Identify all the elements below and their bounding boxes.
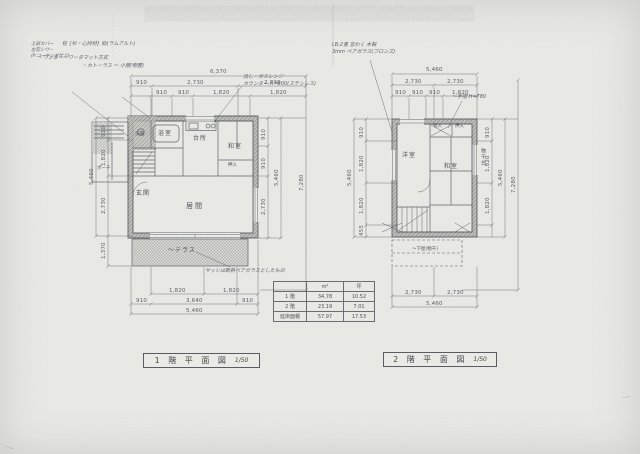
dim-label: 1,820 <box>359 155 366 172</box>
plan2-title: 2 階 平 面 図 <box>393 354 467 365</box>
room-label-bath: 浴室 <box>158 130 172 137</box>
room-label-kitchen: 台所 <box>193 135 207 142</box>
dim-label: 910 <box>412 90 423 97</box>
dim-label: 5,460 <box>426 67 443 74</box>
dim-label: 1,820 <box>452 90 469 97</box>
dim-label: 1,820 <box>101 149 108 166</box>
dim-label: 5,460 <box>347 169 354 186</box>
dim-label: 5,460 <box>89 168 96 185</box>
dim-label: 5,460 <box>426 301 443 308</box>
room-label-wash: 洗面 <box>135 132 144 137</box>
room-label-porch: ポーチ <box>97 166 111 171</box>
room-label-entry: 玄関 <box>136 190 150 197</box>
dim-label: 1,820 <box>485 155 492 172</box>
note-window: LB:2重 窓わく 木製 3mm ペアガラス(ブロンズ) <box>332 42 395 55</box>
area-cell: 7.01 <box>344 302 375 312</box>
dim-label: 2,730 <box>405 79 422 86</box>
dim-label: 455 <box>359 225 366 236</box>
scan-speckle-band <box>172 7 447 20</box>
area-cell: 延床面積 <box>274 312 307 322</box>
dim-label: 1,370 <box>101 242 108 259</box>
area-cell: 23.19 <box>307 302 344 312</box>
dim-label: 5,460 <box>498 169 505 186</box>
plan1-title-box: 1 階 平 面 図 1/50 <box>143 353 260 368</box>
dim-label: 1,820 <box>223 288 240 295</box>
room-label-closet-a: 物入 <box>433 124 442 129</box>
area-cell: 34.78 <box>307 292 344 302</box>
plan1-scale: 1/50 <box>235 357 248 364</box>
dim-label: 910 <box>485 127 492 138</box>
note-shed: ・カトーラス 〜 小屋(物置) <box>82 63 144 70</box>
note-terrace: サッシは断熱ペアガラスとしたもの <box>205 268 285 275</box>
note-posts: 柱 {杉・心持材} 貼(ラムアルト) <box>62 41 135 48</box>
area-cell: 17.53 <box>344 312 375 322</box>
dim-label: 6,370 <box>210 69 227 76</box>
dim-label: 7,280 <box>511 176 518 193</box>
dim-label: 910 <box>261 158 268 169</box>
room-label-closet-b: 押入 <box>455 124 464 129</box>
dim-label: 2,730 <box>261 198 268 215</box>
dim-label: 3,640 <box>186 298 203 305</box>
dim-label: 1,820 <box>169 288 186 295</box>
room-label-closet1: 押入 <box>228 163 237 168</box>
scanned-floor-plan-sheet: 上部カバー 左官シワ— (P.コーキング仕上) 柱 {杉・心持材} 貼(ラムアル… <box>0 0 640 454</box>
plan2-scale: 1/50 <box>473 356 486 363</box>
room-label-tatami1: 和室 <box>228 143 242 150</box>
room-label-west: 洋室 <box>402 152 416 159</box>
dim-label: 910 <box>136 298 147 305</box>
plan1-title: 1 階 平 面 図 <box>155 355 229 366</box>
dim-label: 2,730 <box>447 79 464 86</box>
area-cell: 10.52 <box>344 292 375 302</box>
area-cell: 57.97 <box>307 312 344 322</box>
dim-label: 2,730 <box>187 80 204 87</box>
dim-label: 7,280 <box>299 174 306 191</box>
dim-label: 910 <box>359 127 366 138</box>
dim-label: 910 <box>395 90 406 97</box>
area-cell: 2 階 <box>274 302 307 312</box>
dim-label: 2,730 <box>447 290 464 297</box>
dim-label: 910 <box>156 90 167 97</box>
dim-label: 1,820 <box>359 197 366 214</box>
dim-label: 5,460 <box>274 169 281 186</box>
dim-label: 2,730 <box>101 197 108 214</box>
dim-label: 910 <box>101 126 108 137</box>
dim-label: 1,820 <box>270 90 287 97</box>
dim-label: 2,730 <box>405 290 422 297</box>
area-header <box>274 282 307 292</box>
area-table: m² 坪 1 階 34.78 10.52 2 階 23.19 7.01 延床面積… <box>273 281 375 322</box>
area-header: 坪 <box>344 282 375 292</box>
dim-label: 910 <box>242 298 253 305</box>
area-header: m² <box>307 282 344 292</box>
dim-label: 1,820 <box>213 90 230 97</box>
room-label-tatami2: 和室 <box>444 163 458 170</box>
dim-label: 5,460 <box>186 308 203 315</box>
dim-label: 2,730 <box>264 80 281 87</box>
dim-label: 910 <box>429 90 440 97</box>
dim-label: 910 <box>136 80 147 87</box>
dim-label: 910 <box>261 129 268 140</box>
area-cell: 1 階 <box>274 292 307 302</box>
room-label-living: 居間 <box>186 202 204 210</box>
note-method: ・ワンター・ワータマット方式 <box>38 55 108 62</box>
dim-label: 910 <box>178 90 189 97</box>
dim-label: 1,820 <box>485 197 492 214</box>
plan2-title-box: 2 階 平 面 図 1/50 <box>383 352 497 367</box>
room-label-lower-roof: 〜下屋(物干) <box>412 247 438 252</box>
room-label-terrace: 〜テラス <box>168 247 196 254</box>
